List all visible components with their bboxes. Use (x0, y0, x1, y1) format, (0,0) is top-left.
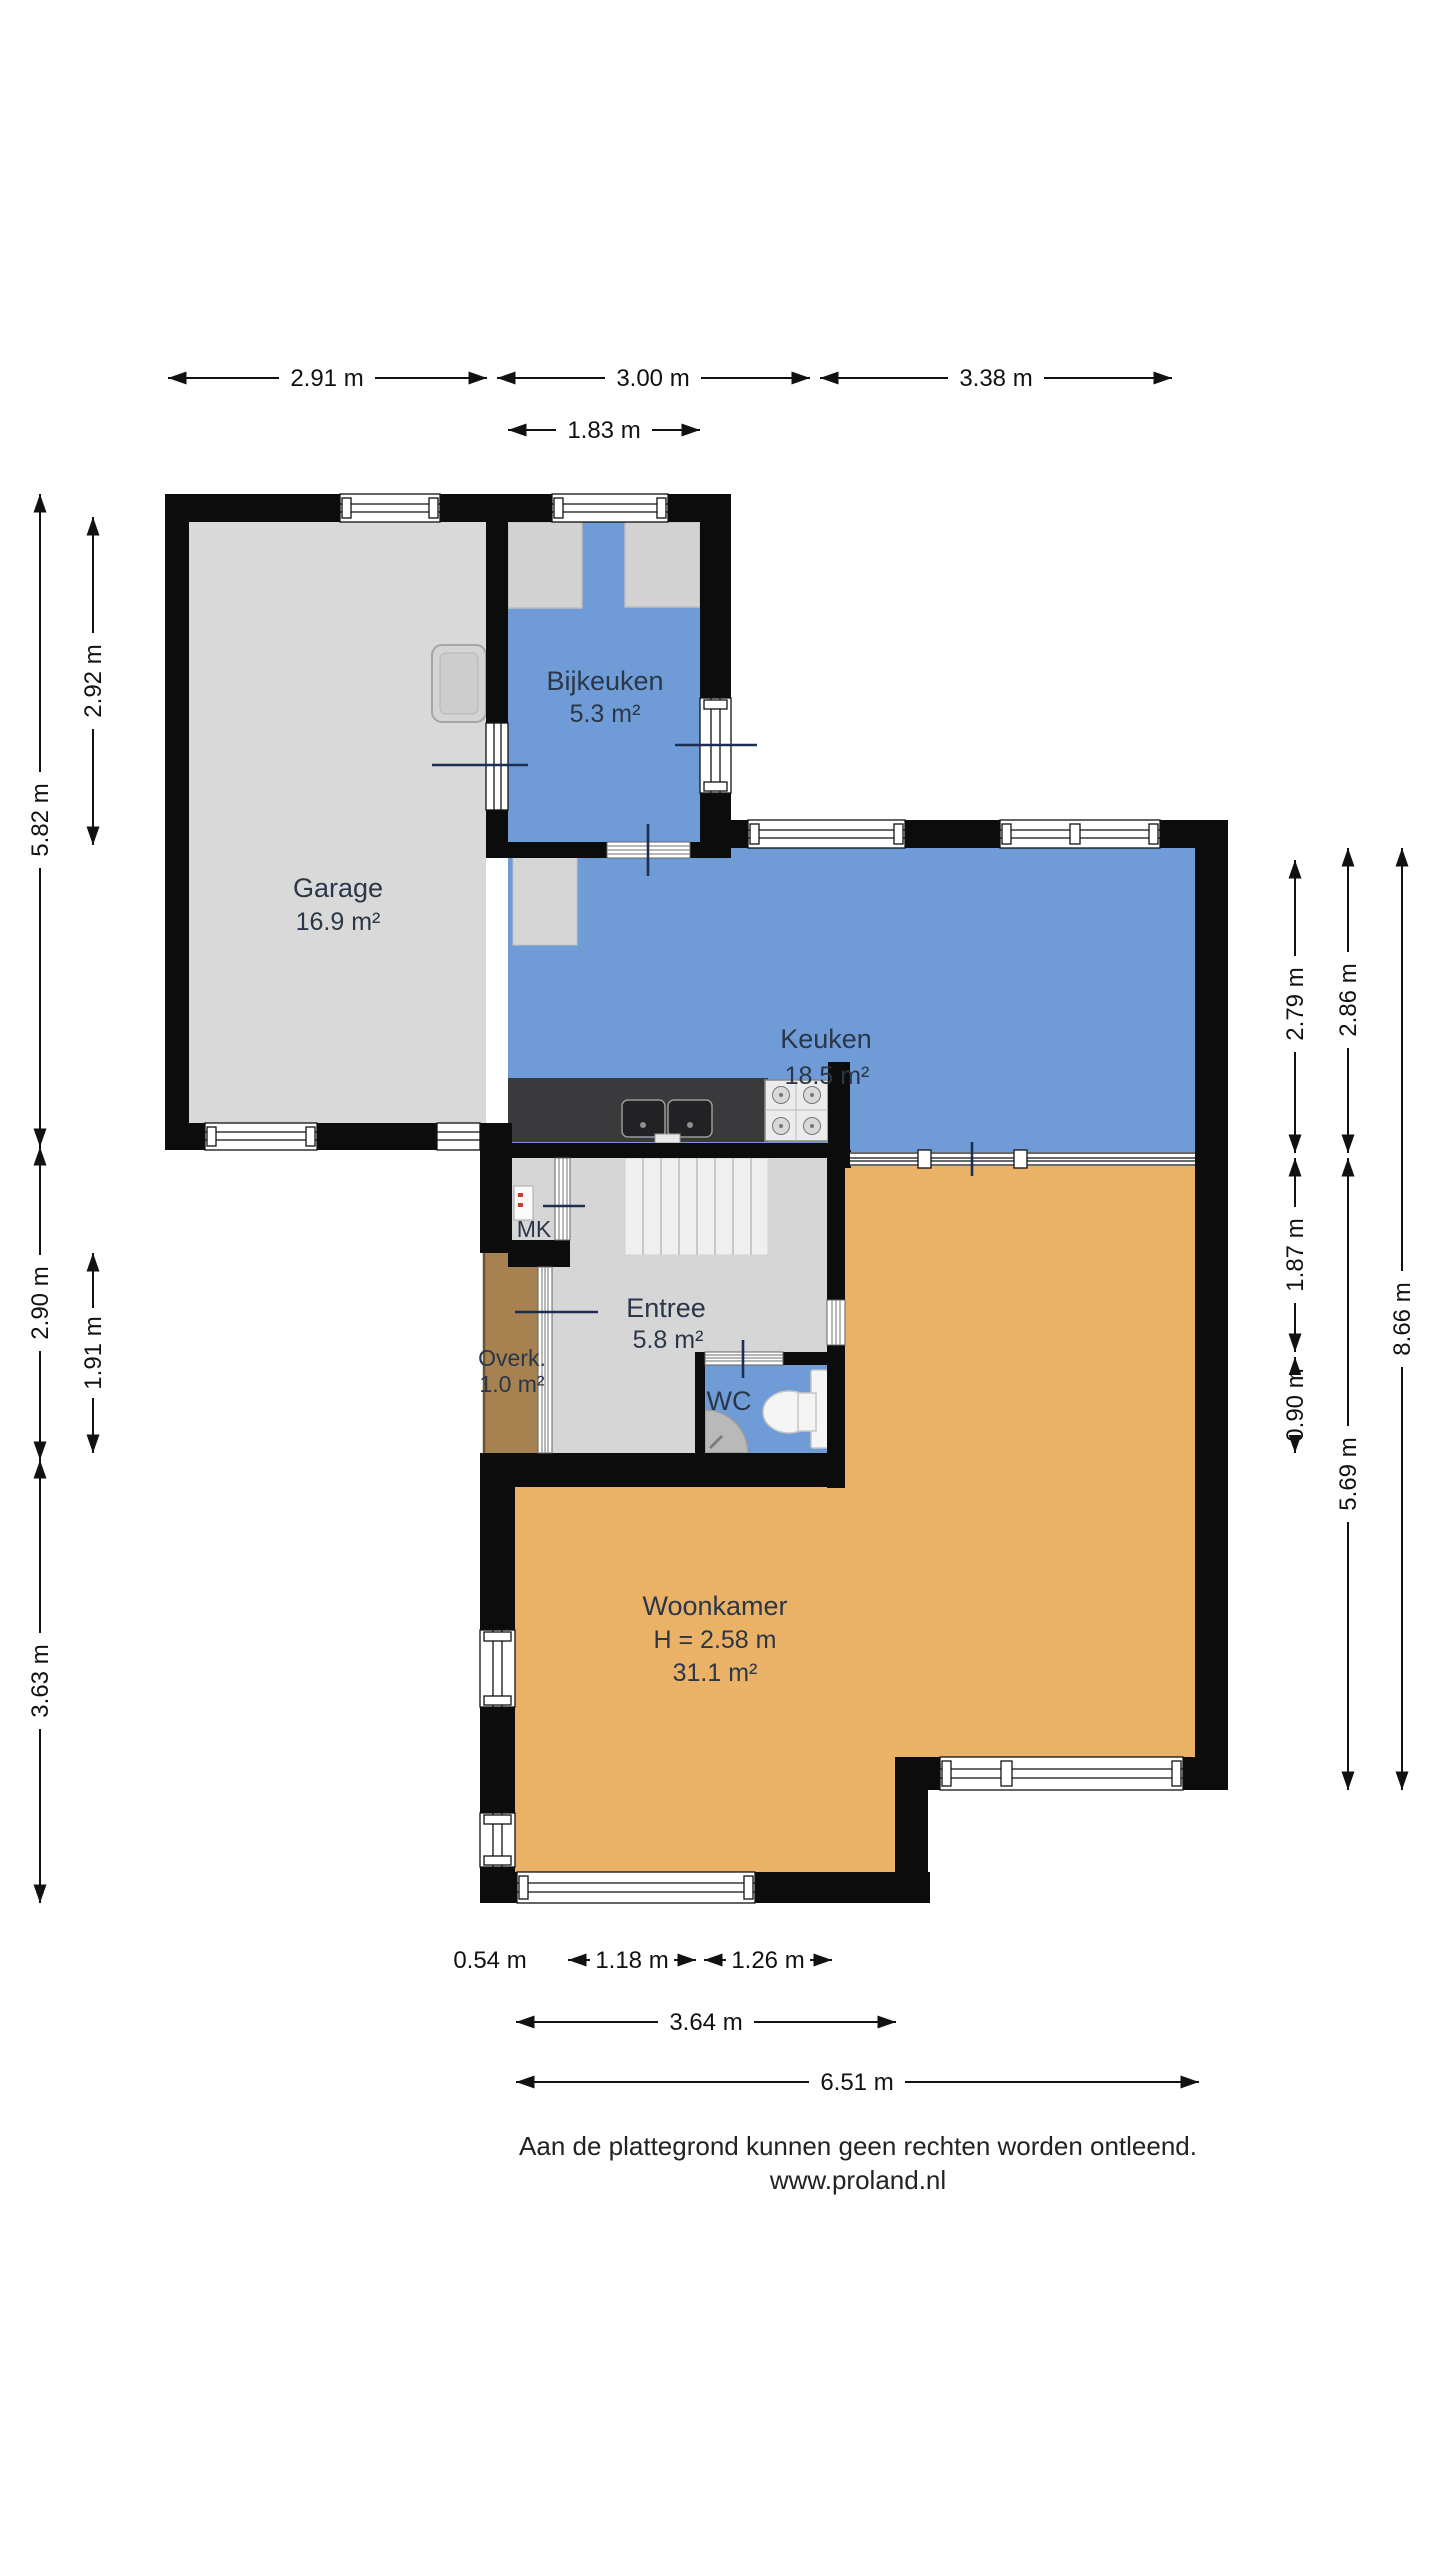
entree-area: 5.8 m² (633, 1326, 704, 1354)
entree-label: Entree (626, 1293, 706, 1323)
faucet (655, 1134, 680, 1143)
dim-top-bijkeuken: 1.83 m (508, 415, 700, 445)
svg-text:1.87 m: 1.87 m (1282, 1218, 1309, 1291)
appliance-left (508, 522, 582, 608)
svg-text:2.90 m: 2.90 m (27, 1266, 54, 1339)
overkapping-area: 1.0 m² (479, 1371, 545, 1397)
dim-bottom-entree: 1.18 m (568, 1945, 696, 1975)
svg-text:1.18 m: 1.18 m (595, 1947, 668, 1974)
appliance-right (625, 522, 700, 607)
dim-bottom-wc: 1.26 m (704, 1945, 832, 1975)
window-garage-south (205, 1123, 317, 1150)
dim-top-1: 2.91 m (168, 363, 487, 393)
keuken-cabinet (513, 850, 577, 945)
divider-keuken-woonkamer (843, 1150, 1195, 1168)
dim-bottom-woonkamer: 3.64 m (516, 2007, 896, 2037)
svg-text:5.82 m: 5.82 m (27, 783, 54, 856)
dim-right-woonkamer: 5.69 m (1333, 1158, 1363, 1790)
dim-left-garage: 5.82 m (25, 494, 55, 1147)
svg-text:1.91 m: 1.91 m (80, 1316, 107, 1389)
garage-area: 16.9 m² (296, 908, 381, 936)
garage-door-leaf (432, 645, 486, 722)
door-mk (555, 1158, 570, 1240)
svg-text:2.86 m: 2.86 m (1335, 963, 1362, 1036)
svg-text:3.64 m: 3.64 m (669, 2009, 742, 2036)
woonkamer-height: H = 2.58 m (654, 1626, 777, 1654)
window-bijkeuken-north (552, 494, 668, 522)
opening-entree-woonkamer (827, 1300, 845, 1345)
dim-right-keuken: 2.79 m (1280, 860, 1310, 1153)
dim-left-bijkeuken: 2.92 m (78, 517, 108, 845)
kitchen-counter (508, 1078, 768, 1143)
svg-text:1.26 m: 1.26 m (731, 1947, 804, 1974)
dim-bottom-total: 6.51 m (516, 2067, 1199, 2097)
svg-text:8.66 m: 8.66 m (1389, 1282, 1416, 1355)
svg-text:2.92 m: 2.92 m (80, 644, 107, 717)
dim-right-wc: 0.90 m (1280, 1357, 1310, 1453)
woonkamer-label: Woonkamer (642, 1591, 787, 1621)
stairs (625, 1158, 768, 1255)
sink-right (668, 1100, 712, 1137)
bijkeuken-label: Bijkeuken (546, 666, 663, 696)
svg-text:5.69 m: 5.69 m (1335, 1437, 1362, 1510)
floorplan-drawing: Garage 16.9 m² Bijkeuken 5.3 m² Keuken 1… (0, 0, 1440, 2560)
window-keuken-north-right (1000, 820, 1160, 848)
window-keuken-north-left (748, 820, 905, 848)
dim-left-woonkamer: 3.63 m (25, 1460, 55, 1903)
window-garage-north (340, 494, 440, 522)
dim-bottom-overk: 0.54 m (453, 1947, 526, 1974)
window-woonkamer-south (517, 1872, 755, 1903)
mk-label: MK (517, 1216, 552, 1242)
window-garage-bijkeuken (486, 723, 508, 810)
svg-text:3.38 m: 3.38 m (959, 365, 1032, 392)
svg-text:2.79 m: 2.79 m (1282, 967, 1309, 1040)
window-garage-south-2 (437, 1123, 480, 1150)
keuken-area: 18.5 m² (785, 1062, 870, 1090)
svg-text:3.00 m: 3.00 m (616, 365, 689, 392)
dim-right-entree: 1.87 m (1280, 1158, 1310, 1352)
dim-right-keuken-outer: 2.86 m (1333, 848, 1363, 1153)
dim-left-mid: 2.90 m (25, 1147, 55, 1460)
disclaimer-text: Aan de plattegrond kunnen geen rechten w… (519, 2131, 1197, 2161)
window-woonkamer-west-1 (480, 1630, 515, 1707)
wc-label: WC (707, 1386, 752, 1416)
window-woonkamer-southeast (940, 1757, 1183, 1790)
keuken-label: Keuken (780, 1024, 872, 1054)
dim-top-3: 3.38 m (820, 363, 1172, 393)
garage-floor (189, 522, 486, 1123)
website-text: www.proland.nl (769, 2165, 946, 2195)
bijkeuken-area: 5.3 m² (570, 700, 641, 728)
svg-text:0.90 m: 0.90 m (1282, 1368, 1309, 1441)
svg-text:1.83 m: 1.83 m (567, 417, 640, 444)
woonkamer-area: 31.1 m² (673, 1659, 758, 1687)
overkapping-label: Overk. (478, 1345, 546, 1371)
mk-meter-device (514, 1186, 533, 1220)
svg-text:2.91 m: 2.91 m (290, 365, 363, 392)
sink-left (622, 1100, 665, 1137)
svg-text:3.63 m: 3.63 m (27, 1644, 54, 1717)
svg-text:6.51 m: 6.51 m (820, 2069, 893, 2096)
dim-left-overkapping: 1.91 m (78, 1253, 108, 1453)
window-woonkamer-west-2 (480, 1813, 515, 1867)
floorplan-page: Garage 16.9 m² Bijkeuken 5.3 m² Keuken 1… (0, 0, 1440, 2560)
dim-right-total: 8.66 m (1387, 848, 1417, 1790)
footer: Aan de plattegrond kunnen geen rechten w… (519, 2131, 1197, 2195)
garage-label: Garage (293, 873, 383, 903)
dim-top-2: 3.00 m (497, 363, 810, 393)
